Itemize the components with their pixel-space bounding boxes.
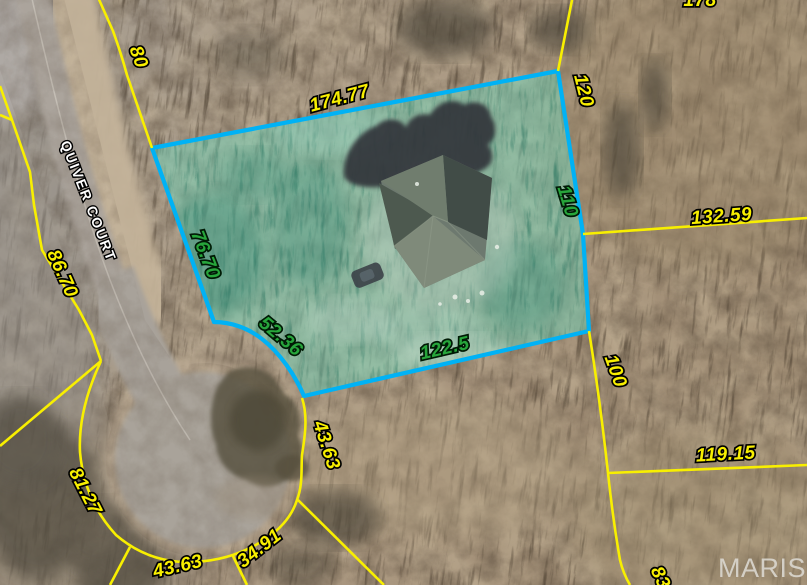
svg-text:132.59: 132.59 — [690, 204, 752, 229]
svg-text:119.15: 119.15 — [695, 442, 756, 466]
svg-text:178: 178 — [683, 0, 716, 11]
svg-text:MARIS: MARIS — [718, 553, 806, 583]
